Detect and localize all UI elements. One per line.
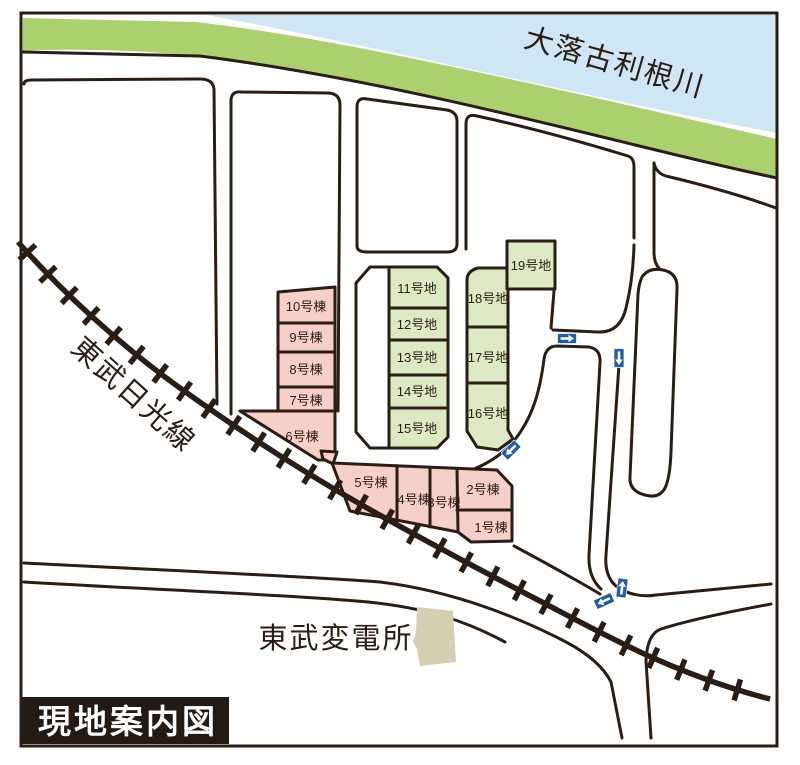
one-way-arrow-south-icon — [614, 349, 624, 368]
parcel-18-label: 18号地 — [468, 291, 508, 306]
substation-building — [413, 607, 456, 666]
lot-2-label: 2号棟 — [466, 482, 499, 497]
page-title: 現地案内図 — [38, 703, 218, 740]
one-way-arrow-east-icon — [558, 334, 577, 344]
parcel-14-label: 14号地 — [397, 384, 437, 399]
map-title: 現地案内図 — [20, 697, 229, 744]
parcel-13-label: 13号地 — [397, 350, 437, 365]
lot-1-label: 1号棟 — [474, 520, 507, 535]
lot-5-label: 5号棟 — [354, 475, 387, 490]
lot-10-label: 10号棟 — [286, 299, 326, 314]
lot-6-label: 6号棟 — [285, 429, 318, 444]
substation-label: 東武変電所 — [258, 622, 413, 655]
lot-9-label: 9号棟 — [289, 330, 322, 345]
lot-8-label: 8号棟 — [289, 362, 322, 377]
lot-3-label: 3号棟 — [427, 495, 460, 510]
parcel-11-label: 11号地 — [397, 281, 437, 296]
map-canvas: 1号棟 2号棟 3号棟 4号棟 5号棟 6号棟 7号棟 8号棟 9号棟 10号棟… — [0, 0, 800, 760]
parcel-17-label: 17号地 — [468, 350, 508, 365]
lot-7-label: 7号棟 — [289, 393, 322, 408]
lot-4-label: 4号棟 — [397, 492, 430, 507]
parcel-12-label: 12号地 — [397, 317, 437, 332]
parcel-15-label: 15号地 — [397, 421, 437, 436]
site-guide-map: 1号棟 2号棟 3号棟 4号棟 5号棟 6号棟 7号棟 8号棟 9号棟 10号棟… — [0, 0, 800, 760]
parcel-19-label: 19号地 — [511, 258, 551, 273]
one-way-arrow-north-icon — [616, 578, 628, 598]
parcel-16-label: 16号地 — [468, 406, 508, 421]
